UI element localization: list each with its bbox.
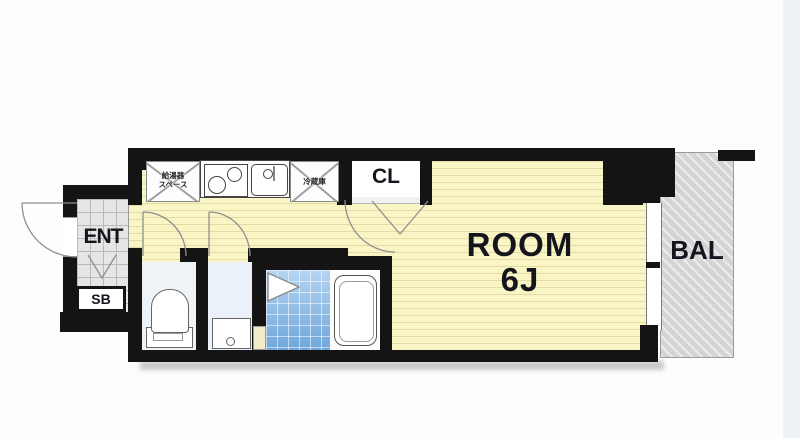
room-door-arc <box>345 200 395 252</box>
closet-folding-door <box>372 201 428 234</box>
room-label: ROOM 6J <box>430 228 610 297</box>
water-heater-label-line1: 給湯器 <box>147 171 199 180</box>
room-label-line1: ROOM <box>430 228 610 263</box>
door-swing-overlay <box>0 0 800 438</box>
floor-plan: BAL ENT SB 給湯器 スペース <box>0 0 800 438</box>
entrance-door-arc <box>22 203 77 257</box>
room-label-line2: 6J <box>430 263 610 298</box>
refrigerator-label: 冷蔵庫 <box>291 177 338 186</box>
washroom-door-arc <box>209 212 250 256</box>
water-heater-label-line2: スペース <box>147 180 199 189</box>
entrance-fan-icon <box>88 255 116 278</box>
toilet-door-arc <box>143 212 186 256</box>
bath-folding-door <box>268 273 299 301</box>
